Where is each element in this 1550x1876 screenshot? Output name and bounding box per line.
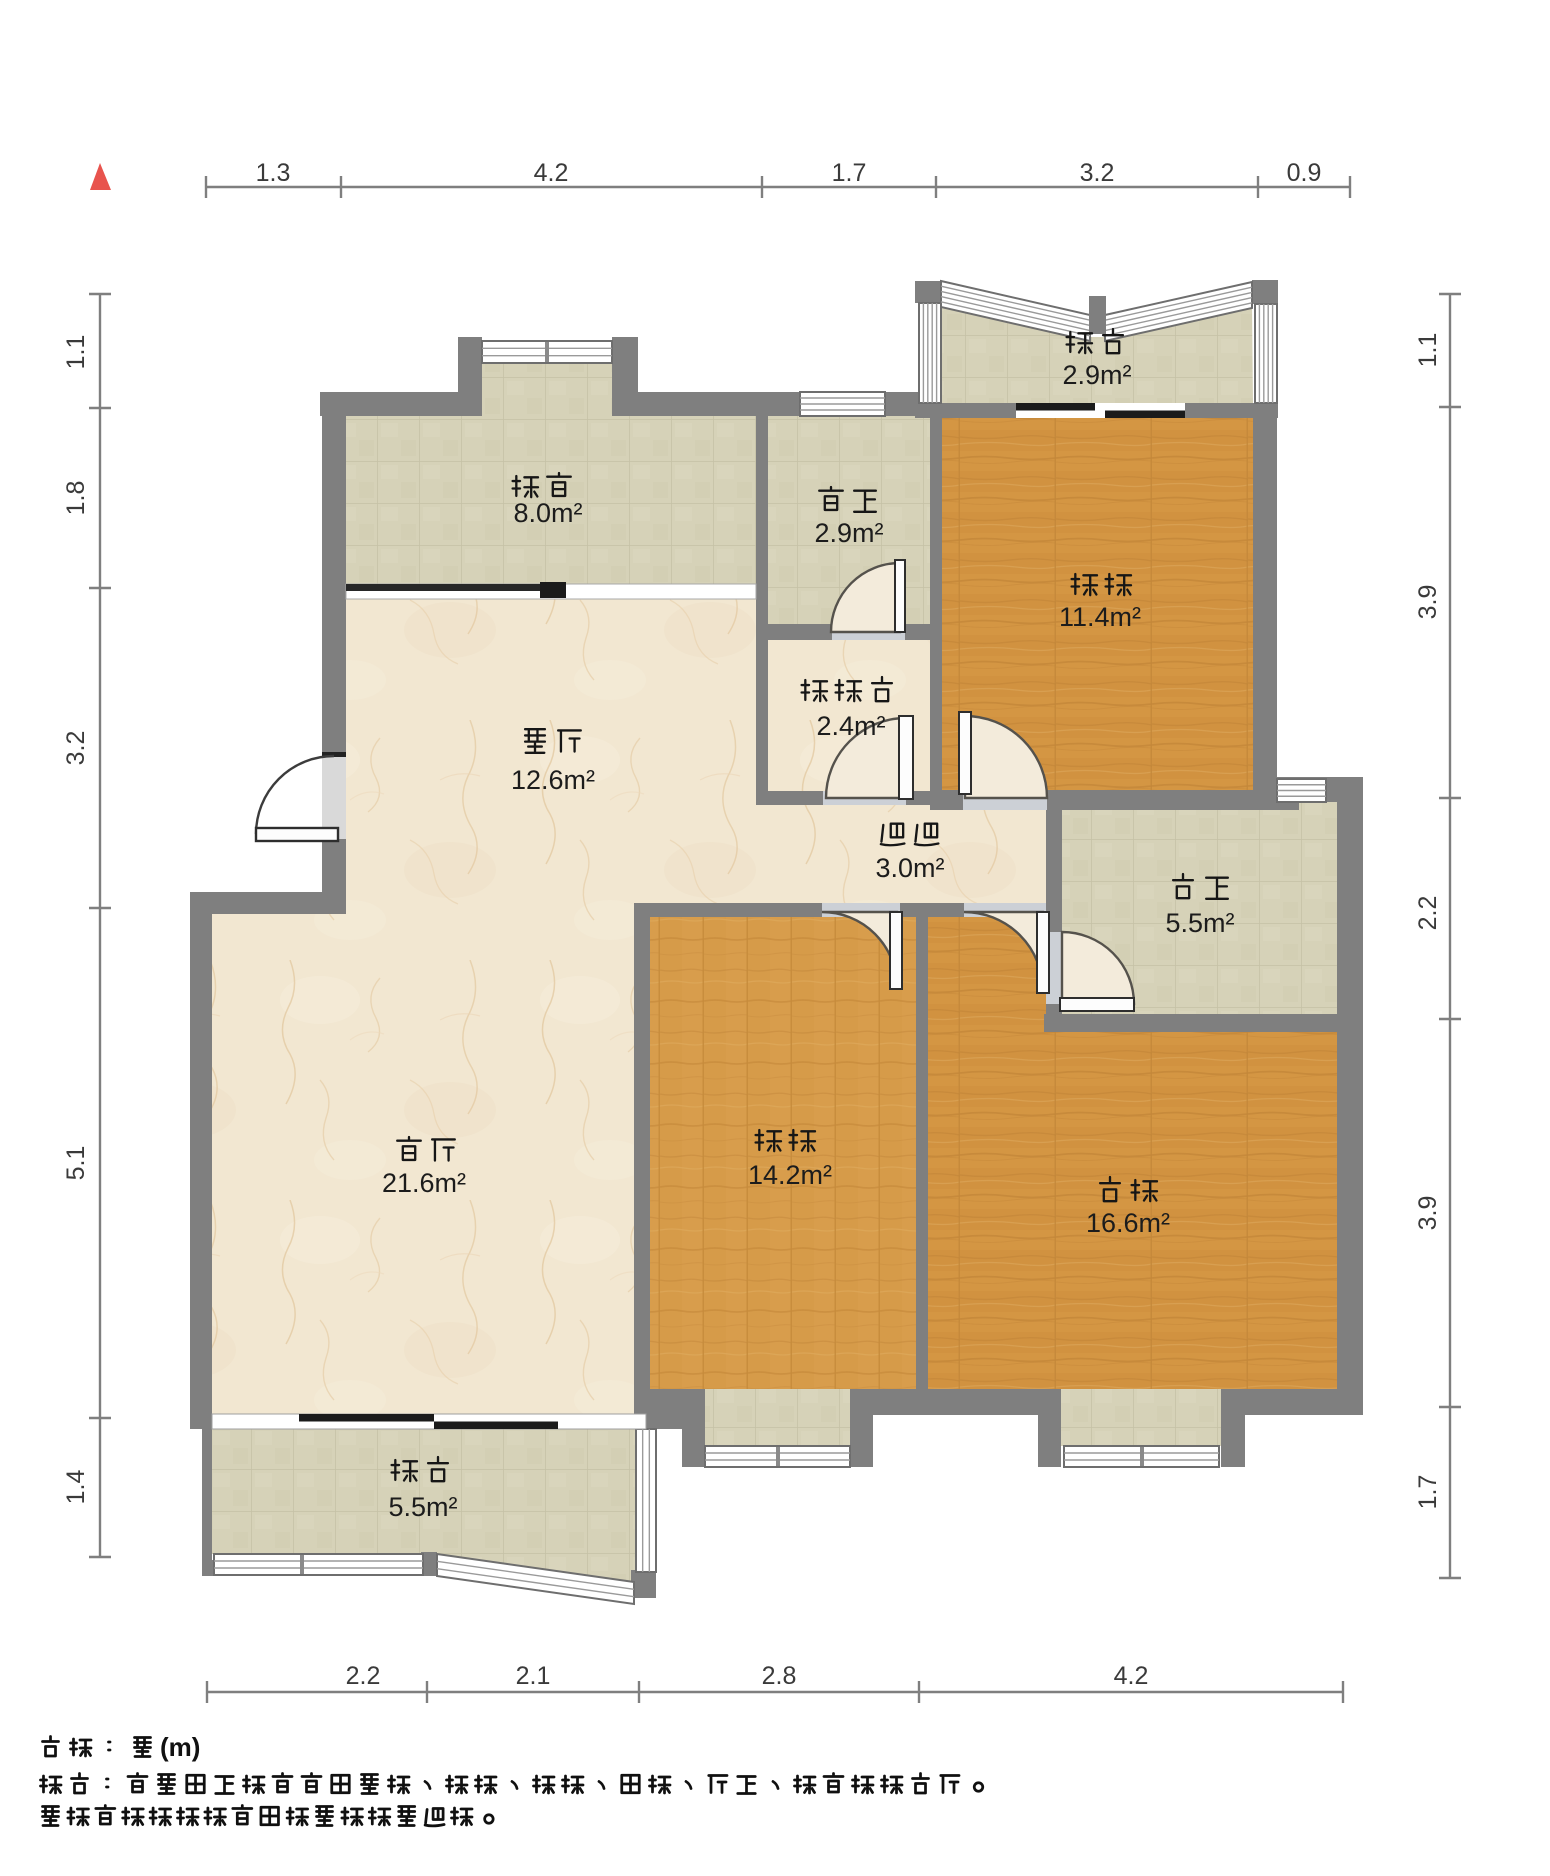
svg-text:16.6m²: 16.6m² <box>1086 1208 1170 1238</box>
svg-text:12.6m²: 12.6m² <box>511 765 595 795</box>
svg-text:1.4: 1.4 <box>62 1470 90 1505</box>
svg-text:3.9: 3.9 <box>1414 1196 1442 1231</box>
svg-text:11.4m²: 11.4m² <box>1059 602 1141 632</box>
svg-text:2.1: 2.1 <box>516 1662 551 1690</box>
svg-text:3.0m²: 3.0m² <box>875 853 944 883</box>
svg-text:1.1: 1.1 <box>62 335 90 370</box>
svg-text:5.5m²: 5.5m² <box>388 1492 457 1522</box>
svg-text:2.2: 2.2 <box>1414 896 1442 931</box>
svg-text:8.0m²: 8.0m² <box>513 498 582 528</box>
svg-text:1.7: 1.7 <box>832 159 867 187</box>
svg-text:4.2: 4.2 <box>1114 1662 1149 1690</box>
svg-text:0.9: 0.9 <box>1287 159 1322 187</box>
svg-text:14.2m²: 14.2m² <box>748 1160 832 1190</box>
svg-text:2.9m²: 2.9m² <box>1062 360 1131 390</box>
svg-text:2.4m²: 2.4m² <box>816 711 885 741</box>
svg-text:2.2: 2.2 <box>346 1662 381 1690</box>
svg-text:(m): (m) <box>160 1732 200 1762</box>
svg-text:3.9: 3.9 <box>1414 585 1442 620</box>
svg-text:3.2: 3.2 <box>1080 159 1115 187</box>
svg-text:2.9m²: 2.9m² <box>814 518 883 548</box>
svg-text:4.2: 4.2 <box>534 159 569 187</box>
svg-text:1.7: 1.7 <box>1414 1475 1442 1510</box>
svg-text:21.6m²: 21.6m² <box>382 1168 466 1198</box>
svg-text:1.3: 1.3 <box>256 159 291 187</box>
svg-text:2.8: 2.8 <box>762 1662 797 1690</box>
svg-text:1.8: 1.8 <box>62 481 90 516</box>
svg-text:3.2: 3.2 <box>62 731 90 766</box>
svg-text:5.1: 5.1 <box>62 1146 90 1181</box>
svg-text:1.1: 1.1 <box>1414 333 1442 368</box>
svg-text:5.5m²: 5.5m² <box>1165 908 1234 938</box>
